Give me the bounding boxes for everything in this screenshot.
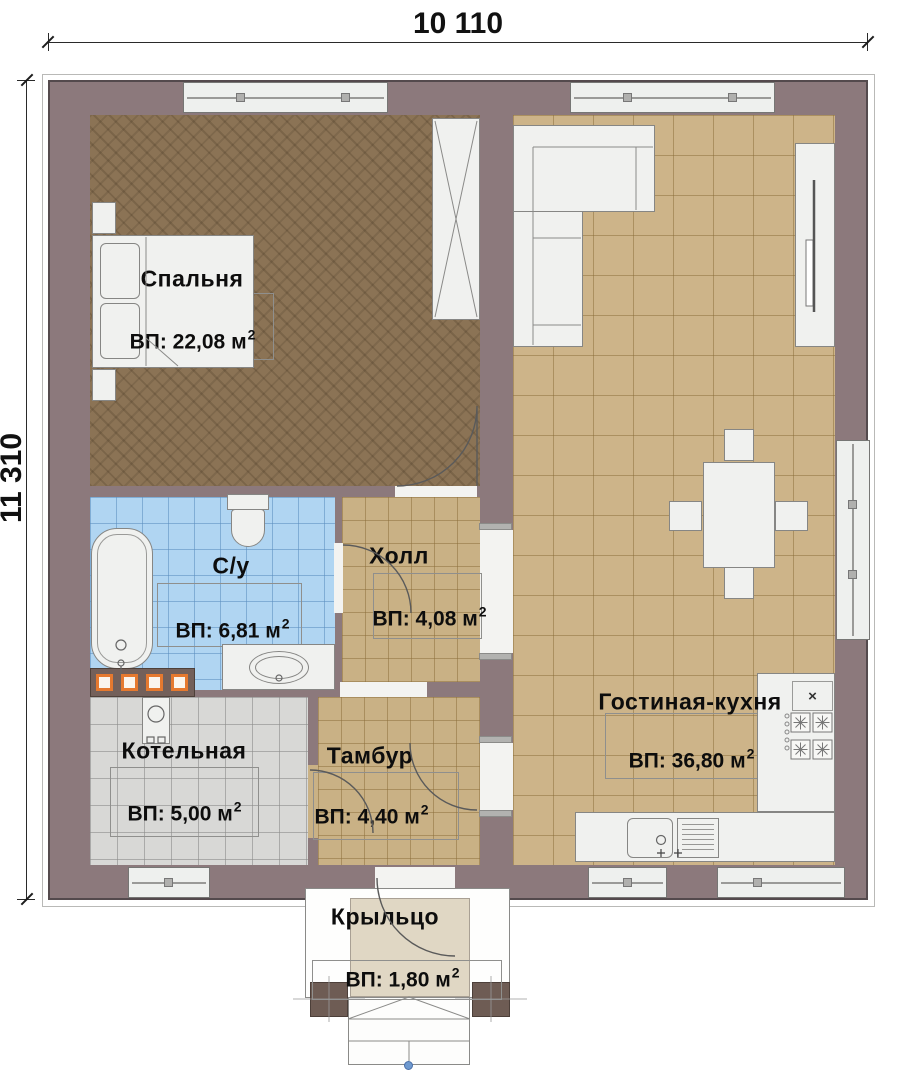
toilet-bowl [231,509,265,547]
heater-flue [171,674,188,691]
kitchen-vent-mark: × [792,681,833,711]
bathroom-name-label: С/у [212,553,249,580]
vent-mark-glyph: × [808,688,817,705]
window-mullion [753,878,762,887]
window-glass [574,97,771,99]
window-mullion [164,878,173,887]
nightstand [92,369,116,401]
window-mullion [236,93,245,102]
window-glass [721,882,841,884]
living-name-label: Гостиная-кухня [598,689,781,716]
sofa-seat [513,125,655,212]
wardrobe [432,118,480,320]
bedroom-name-label: Спальня [141,266,244,293]
bathroom-area-label: ВП: 6,81 м2 [175,617,288,644]
window-mullion [623,93,632,102]
porch-name-label: Крыльцо [331,904,439,931]
window-glass [852,444,854,636]
window-mullion [341,93,350,102]
bathtub-inner [97,534,147,663]
porch-steps [348,997,470,1065]
entry-marker-dot [404,1061,413,1070]
pillow [100,243,140,299]
vestibule-name-label: Тамбур [327,743,413,770]
toilet-tank [227,494,269,510]
porch-area-label: ВП: 1,80 м2 [345,966,458,993]
nightstand [92,202,116,234]
heater-flue [96,674,113,691]
dining-chair [724,429,754,461]
floor-plan: 10 110 11 310 [0,0,899,1080]
door-jamb-tab [479,736,512,743]
hall-vestibule-opening [340,682,427,697]
window-glass [187,97,384,99]
dimension-line-top [48,42,868,43]
window-mullion [848,500,857,509]
bathroom-door-opening [334,543,343,613]
door-jamb-tab [479,810,512,817]
hall-living-opening [480,530,513,653]
kitchen-sink [627,818,673,858]
dining-chair [669,501,702,531]
boiler-name-label: Котельная [122,738,247,765]
window-right-living [836,440,870,640]
door-jamb-tab [479,653,512,660]
boiler-area-label: ВП: 5,00 м2 [127,800,240,827]
dimension-height-label: 11 310 [0,433,29,523]
bedroom-area-label: ВП: 22,08 м2 [130,328,255,355]
door-jamb-tab [479,523,512,530]
dining-chair [775,501,808,531]
vanity-sink-basin [255,656,303,679]
bathtub [91,528,153,669]
vestibule-area-label: ВП: 4,40 м2 [314,803,427,830]
dimension-width-label: 10 110 [413,7,503,41]
hall-name-label: Холл [369,543,429,570]
kitchen-drainer [677,818,719,858]
window-mullion [728,93,737,102]
dining-table [703,462,775,568]
heater-flue [121,674,138,691]
bedroom-door-opening [395,486,477,497]
living-area-label: ВП: 36,80 м2 [629,747,754,774]
window-top-living [570,82,775,113]
window-mullion [848,570,857,579]
hall-area-label: ВП: 4,08 м2 [372,605,485,632]
window-bottom-kitchen-2 [717,867,845,898]
dining-chair [724,567,754,599]
heater-flue [146,674,163,691]
window-top-bedroom [183,82,388,113]
vestibule-living-opening [480,743,513,810]
tv-unit [795,143,835,347]
window-mullion [623,878,632,887]
